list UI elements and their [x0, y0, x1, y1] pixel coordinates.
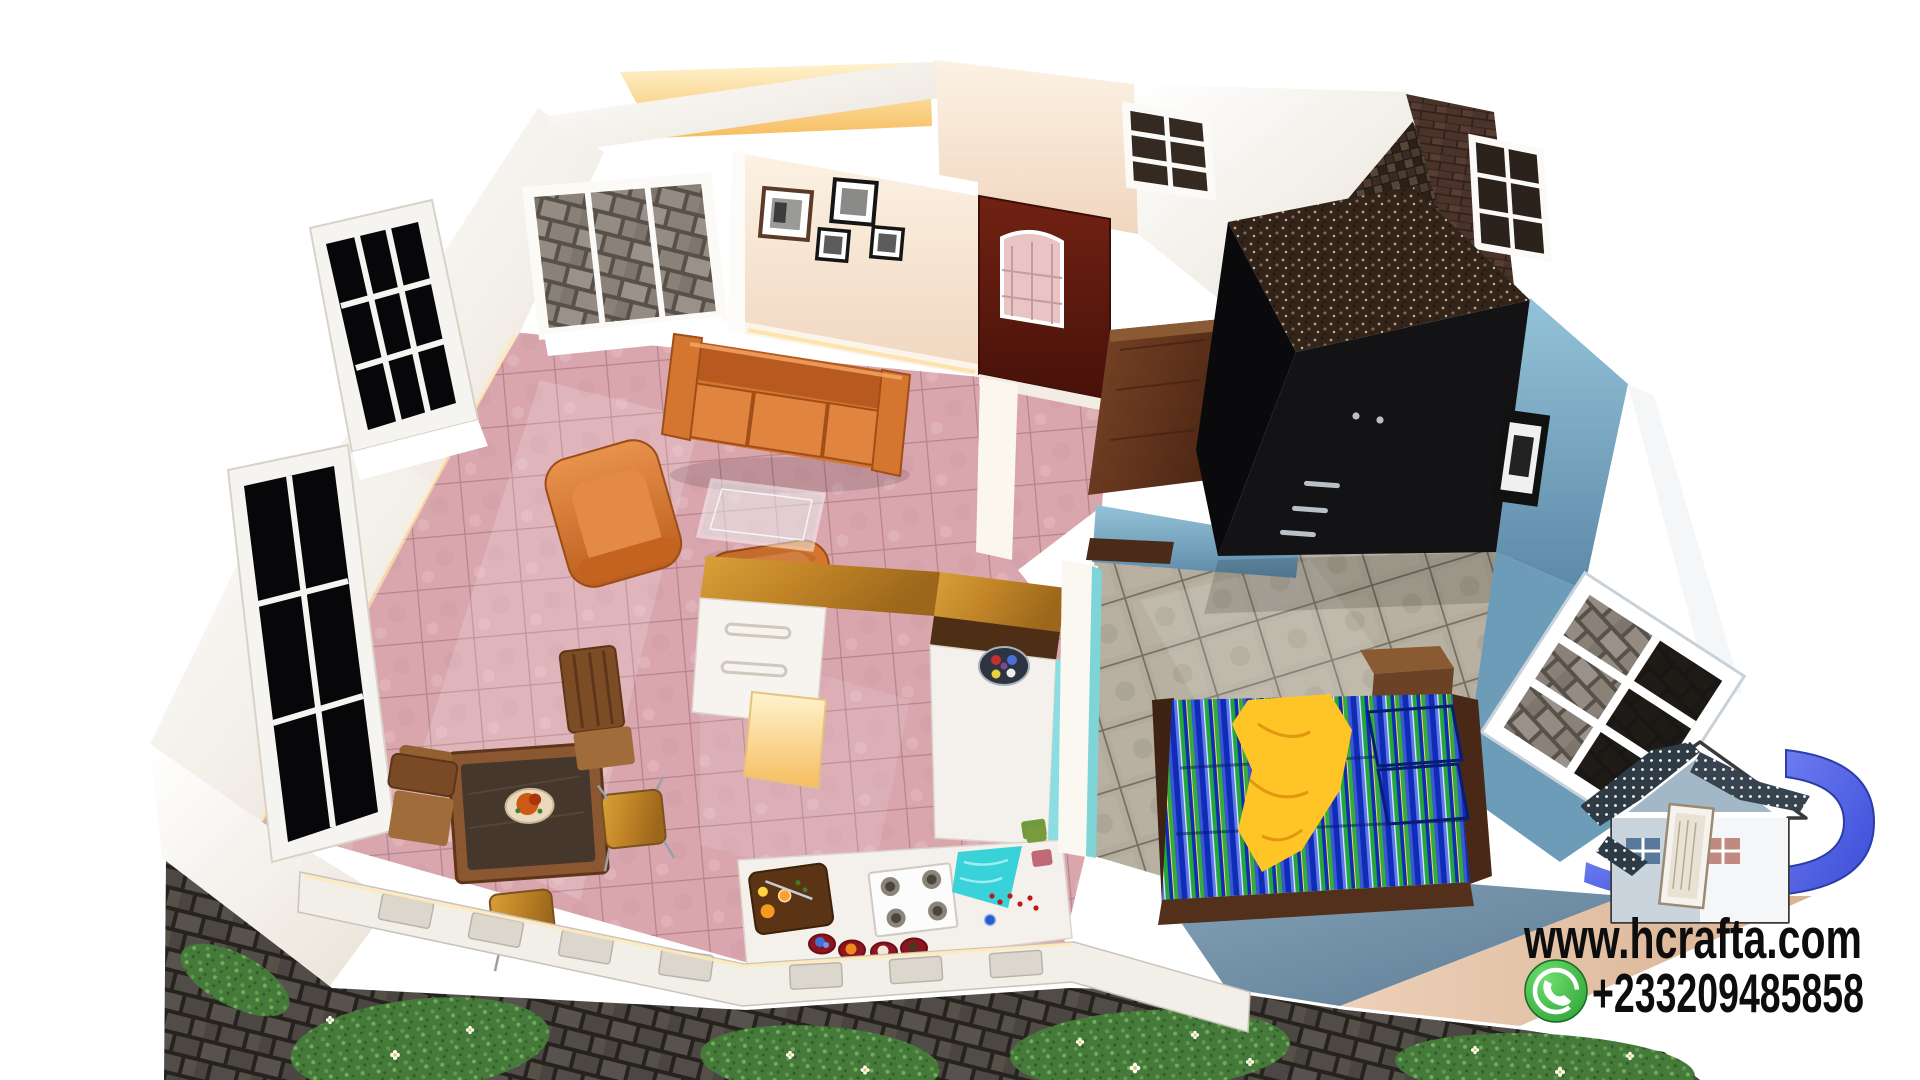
- wardrobe-knob: [1352, 412, 1359, 419]
- photo: [877, 233, 897, 253]
- pink-packet: [1031, 849, 1053, 868]
- picture-frame-small-2: [871, 227, 904, 260]
- photo: [840, 188, 868, 216]
- render-canvas: www.hcrafta.com +233209485858: [0, 0, 1920, 1080]
- bed: [1152, 694, 1492, 925]
- lit-cabinet-niche: [744, 692, 826, 788]
- logo-p-swoosh: [1786, 750, 1874, 894]
- sofa-three-seat: [662, 334, 910, 493]
- whatsapp-phone-icon: [1525, 960, 1587, 1022]
- blue-ball: [985, 915, 996, 926]
- chair-seat: [388, 790, 455, 847]
- door-glass-grid: [1002, 242, 1062, 324]
- serving-tray: [979, 647, 1029, 685]
- picture-frame-small-1: [817, 229, 850, 262]
- gas-stove: [868, 863, 957, 937]
- glass-coffee-table: [698, 480, 824, 568]
- hallway-low-wall: [976, 378, 1018, 560]
- floor-plan-render: www.hcrafta.com +233209485858: [0, 0, 1920, 1080]
- logo-door: [1659, 804, 1713, 908]
- open-corner-window: [528, 178, 726, 356]
- watermark-phone-text: +233209485858: [1592, 962, 1864, 1024]
- cutting-board: [748, 863, 834, 935]
- bed-foot-bench: [1086, 538, 1174, 564]
- window-view-pavers: [528, 178, 722, 334]
- wardrobe-knob: [1376, 416, 1383, 423]
- entry-door: [979, 196, 1110, 412]
- green-packet: [1025, 825, 1047, 844]
- far-right-window: [1472, 138, 1548, 258]
- picture-frame-large: [760, 188, 812, 240]
- chair-seat: [573, 726, 635, 771]
- photo: [823, 235, 843, 255]
- top-right-window: [1126, 106, 1212, 196]
- picture-frame-medium: [831, 179, 877, 225]
- watermark: www.hcrafta.com +233209485858: [1523, 907, 1864, 1024]
- kitchen-island: [930, 645, 1078, 845]
